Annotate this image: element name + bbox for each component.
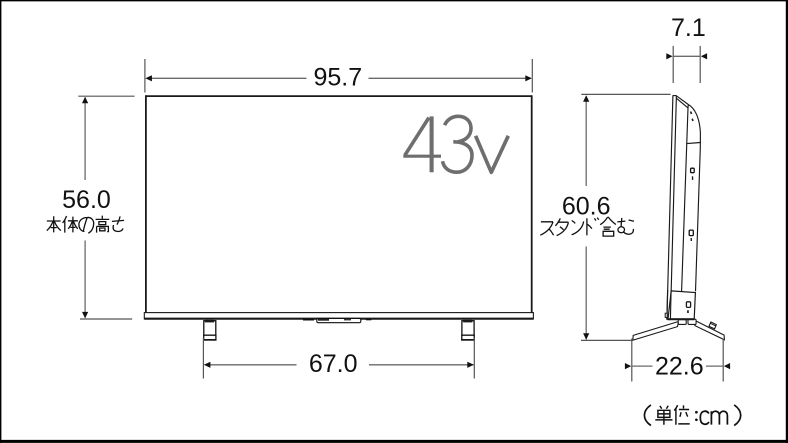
svg-text:22.6: 22.6	[655, 353, 704, 381]
svg-text:7.1: 7.1	[671, 14, 706, 42]
svg-text:60.6: 60.6	[562, 193, 611, 221]
svg-text:56.0: 56.0	[62, 186, 111, 214]
svg-text:95.7: 95.7	[313, 63, 362, 91]
svg-text:67.0: 67.0	[309, 350, 358, 378]
